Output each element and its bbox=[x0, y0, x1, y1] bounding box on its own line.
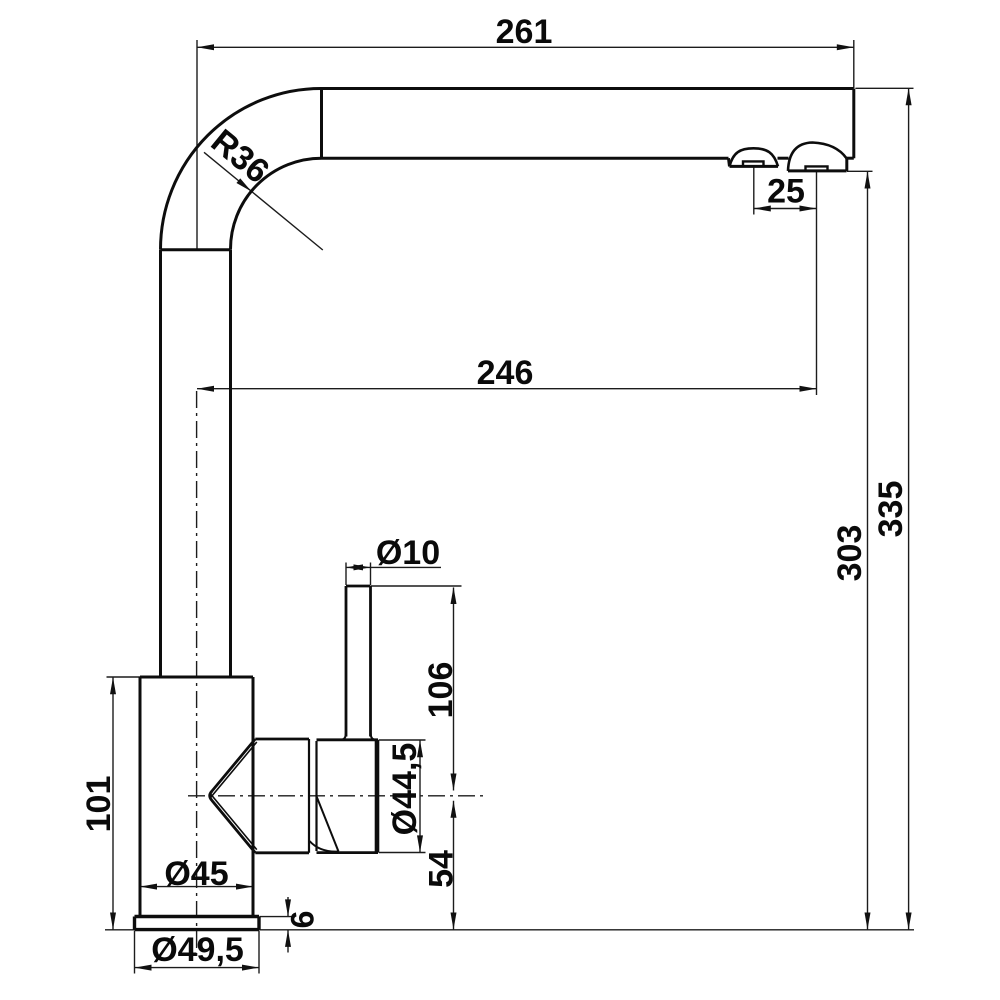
svg-text:54: 54 bbox=[423, 850, 461, 888]
svg-text:106: 106 bbox=[422, 662, 460, 719]
svg-text:6: 6 bbox=[285, 911, 321, 929]
svg-text:Ø10: Ø10 bbox=[376, 534, 440, 572]
svg-text:246: 246 bbox=[477, 354, 534, 392]
svg-text:25: 25 bbox=[767, 173, 805, 211]
svg-text:Ø49,5: Ø49,5 bbox=[151, 931, 244, 969]
svg-text:101: 101 bbox=[80, 776, 118, 833]
svg-text:Ø45: Ø45 bbox=[164, 855, 228, 893]
svg-text:261: 261 bbox=[496, 13, 553, 51]
svg-text:335: 335 bbox=[872, 481, 910, 538]
svg-text:Ø44,5: Ø44,5 bbox=[386, 743, 424, 836]
svg-text:303: 303 bbox=[831, 525, 869, 582]
